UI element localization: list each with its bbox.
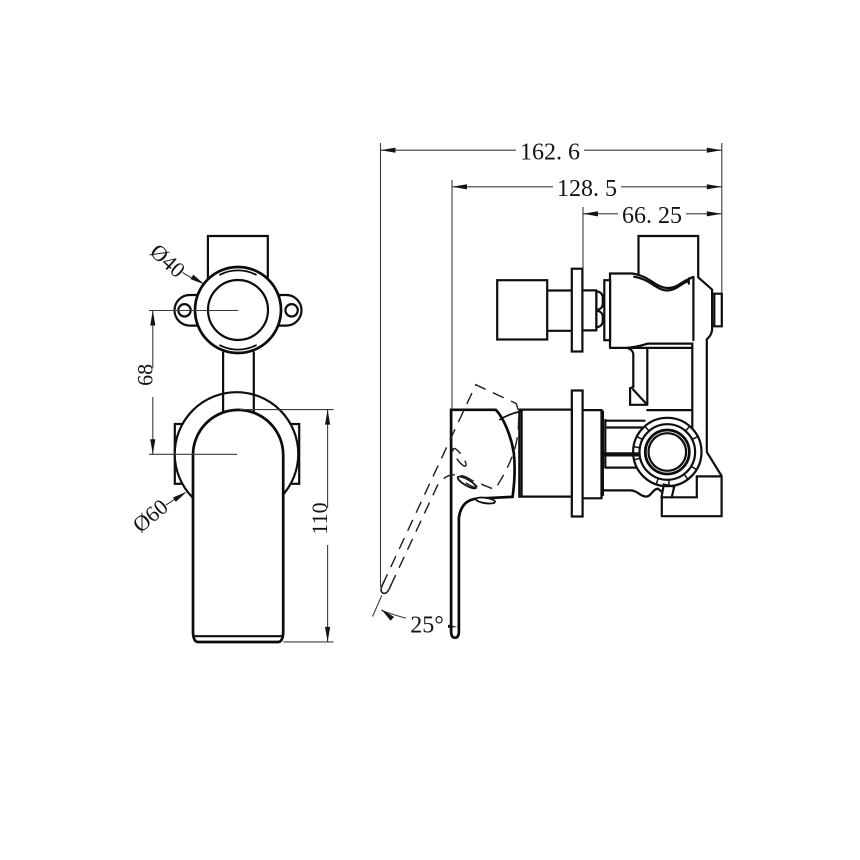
svg-text:162. 6: 162. 6 — [520, 140, 580, 166]
svg-text:68: 68 — [133, 364, 158, 386]
svg-text:110: 110 — [307, 502, 332, 534]
svg-text:128. 5: 128. 5 — [557, 176, 617, 202]
svg-text:25°: 25° — [410, 613, 444, 639]
svg-text:66. 25: 66. 25 — [622, 203, 682, 229]
